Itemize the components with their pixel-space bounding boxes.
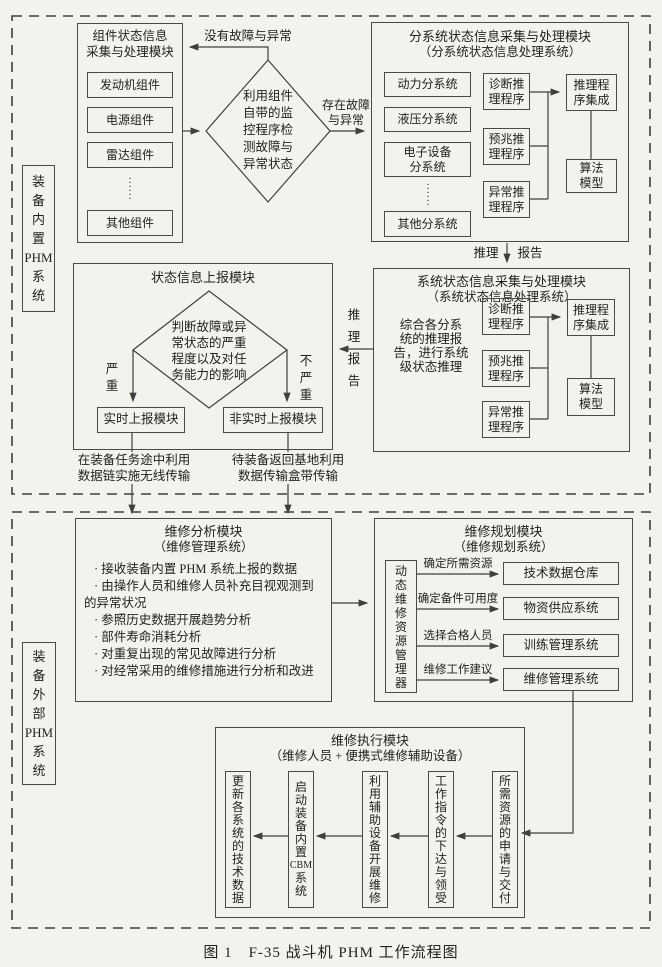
box-hydraulic-subsystem: 液压分系统 xyxy=(384,107,471,132)
box-power-subsystem: 动力分系统 xyxy=(384,72,471,97)
analysis-bullet: · 由操作人员和维修人员补充目视观测到的异常状况 xyxy=(84,578,316,612)
box-non-realtime-report: 非实时上报模块 xyxy=(223,407,323,433)
arrow-no-fault-back xyxy=(190,47,268,60)
box-program-integration-mid: 推理程序集成 xyxy=(567,299,615,336)
box-prognostic-program-top: 预兆推理程序 xyxy=(483,128,530,165)
subsystem-module-subtitle: （分系统状态信息处理系统） xyxy=(419,45,582,61)
side-label-external-phm: 装备外部PHM系统 xyxy=(22,642,56,785)
box-other-subsystem: 其他分系统 xyxy=(384,211,471,237)
wireless-transmission-note: 在装备任务途中利用数据链实施无线传输 xyxy=(70,452,198,484)
execution-module-subtitle: （维修人员 + 便携式维修辅助设备） xyxy=(270,749,471,765)
status-report-module-title: 状态信息上报模块 xyxy=(151,270,255,286)
subsystem-module-title: 分系统状态信息采集与处理模块 xyxy=(409,29,591,45)
box-anomaly-program-top: 异常推理程序 xyxy=(483,181,530,218)
box-algorithm-model-mid: 算法模型 xyxy=(567,378,615,416)
step-start-onboard-cbm: 启动装备内置CBM系统 xyxy=(288,771,314,908)
severity-decision-text: 判断故障或异常状态的严重程度以及对任务能力的影响 xyxy=(146,319,272,383)
box-engine-component: 发动机组件 xyxy=(87,72,173,98)
box-training-management-system: 训练管理系统 xyxy=(503,634,619,657)
box-other-component: 其他组件 xyxy=(87,210,173,236)
box-power-component: 电源组件 xyxy=(87,107,173,133)
step-maintenance-with-aids: 利用辅助设备开展维修 xyxy=(362,771,388,908)
planning-module-title: 维修规划模块 xyxy=(464,524,542,540)
box-diagnostic-program-mid: 诊断推理程序 xyxy=(482,298,530,335)
reasoning-label: 推理 xyxy=(470,246,502,262)
not-severe-label: 不严重 xyxy=(298,353,314,404)
side-label-onboard-phm: 装备内置PHM系统 xyxy=(22,165,55,312)
analysis-module-subtitle: （维修管理系统） xyxy=(153,540,253,556)
analysis-module-title: 维修分析模块 xyxy=(164,524,242,540)
label-spare-availability: 确定备件可用度 xyxy=(417,592,499,606)
analysis-bullet: · 参照历史数据开展趋势分析 xyxy=(84,612,316,629)
box-maintenance-management-system: 维修管理系统 xyxy=(503,668,619,691)
box-diagnostic-program-top: 诊断推理程序 xyxy=(483,73,530,110)
analysis-bullet: · 对经常采用的维修措施进行分析和改进 xyxy=(84,663,316,680)
step-work-order-issue-receive: 工作指令的下达与领受 xyxy=(428,771,454,908)
severe-label: 严重 xyxy=(104,361,120,395)
component-module-title: 组件状态信息采集与处理模块 xyxy=(86,29,174,60)
label-determine-resources: 确定所需资源 xyxy=(417,557,499,571)
box-technical-data-warehouse: 技术数据仓库 xyxy=(503,562,619,585)
box-anomaly-program-mid: 异常推理程序 xyxy=(482,401,530,438)
no-fault-label: 没有故障与异常 xyxy=(188,29,308,45)
fault-label: 存在故障与异常 xyxy=(318,98,374,128)
box-program-integration-top: 推理程序集成 xyxy=(566,74,617,111)
monitor-decision-text: 利用组件自带的监控程序检测故障与异常状态 xyxy=(226,88,310,173)
label-work-suggestion: 维修工作建议 xyxy=(417,663,499,677)
report-label: 报告 xyxy=(514,246,546,262)
analysis-bullet-list: · 接收装备内置 PHM 系统上报的数据 · 由操作人员和维修人员补充目视观测到… xyxy=(84,561,316,680)
analysis-bullet: · 接收装备内置 PHM 系统上报的数据 xyxy=(84,561,316,578)
figure-caption: 图 1 F-35 战斗机 PHM 工作流程图 xyxy=(0,944,662,963)
box-prognostic-program-mid: 预兆推理程序 xyxy=(482,350,530,387)
system-module-description: 综合各分系统的推理报告，进行系统级状态推理 xyxy=(381,318,481,374)
phm-flowchart: 装备内置PHM系统 装备外部PHM系统 组件状态信息采集与处理模块 发动机组件 … xyxy=(0,0,662,967)
box-realtime-report: 实时上报模块 xyxy=(97,407,185,433)
analysis-bullet: · 部件寿命消耗分析 xyxy=(84,629,316,646)
component-ellipsis: ······ xyxy=(120,176,140,204)
cartridge-transmission-note: 待装备返回基地利用数据传输盒带传输 xyxy=(224,452,352,484)
analysis-bullet: · 对重复出现的常见故障进行分析 xyxy=(84,646,316,663)
step-update-technical-data: 更新各系统的技术数据 xyxy=(225,771,251,908)
step-resource-request-delivery: 所需资源的申请与交付 xyxy=(492,771,518,908)
execution-module-title: 维修执行模块 xyxy=(331,733,409,749)
reasoning-report-vertical-label: 推理报告 xyxy=(345,308,363,389)
subsystem-ellipsis: ······ xyxy=(418,183,438,209)
box-electronics-subsystem: 电子设备分系统 xyxy=(384,142,471,177)
planning-module-subtitle: （维修规划系统） xyxy=(453,540,553,556)
box-dynamic-maintenance-resource-manager: 动态维修资源管理器 xyxy=(385,560,417,693)
box-radar-component: 雷达组件 xyxy=(87,142,173,168)
arrow-planning-to-execution xyxy=(522,691,573,833)
box-algorithm-model-top: 算法模型 xyxy=(566,159,617,193)
system-module-title: 系统状态信息采集与处理模块 xyxy=(417,274,586,290)
box-material-supply-system: 物资供应系统 xyxy=(503,597,619,620)
label-select-personnel: 选择合格人员 xyxy=(417,629,499,643)
